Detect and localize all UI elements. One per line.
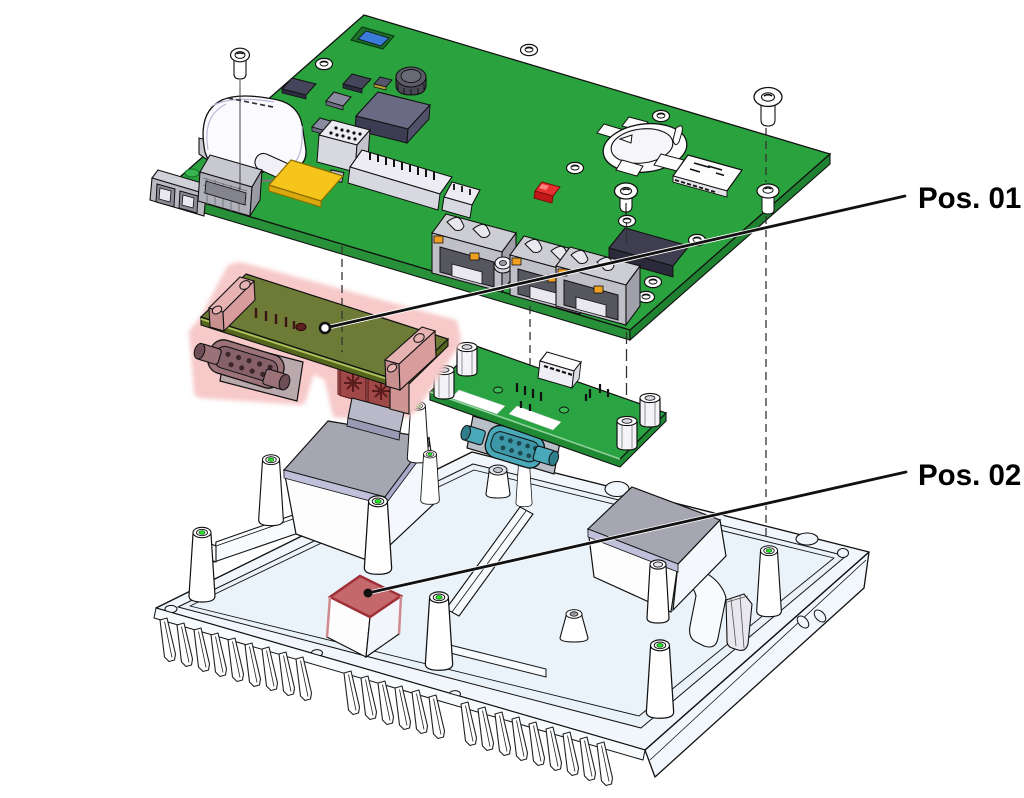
svg-text:Pos. 02: Pos. 02 [918,459,1021,492]
svg-text:Pos. 01: Pos. 01 [918,182,1021,215]
